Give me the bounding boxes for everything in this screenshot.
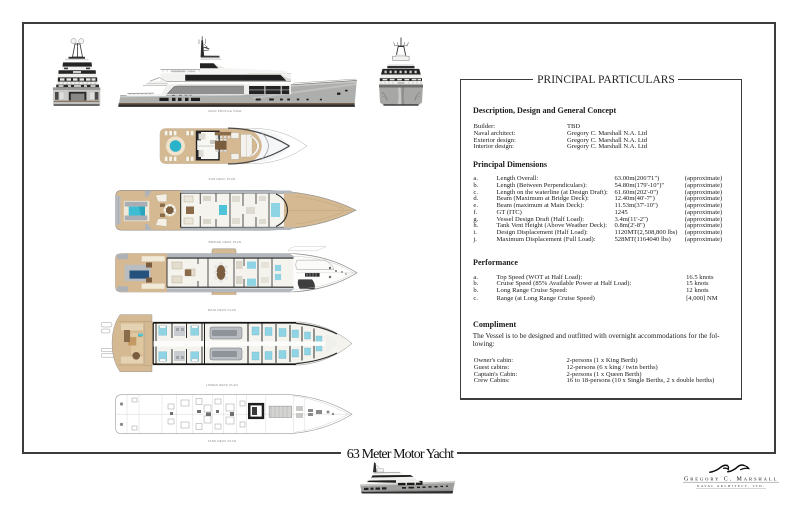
svg-text:GREGORY C. MARSHALL: GREGORY C. MARSHALL [684, 477, 778, 483]
svg-text:NAVAL ARCHITECT, LTD.: NAVAL ARCHITECT, LTD. [697, 484, 765, 489]
